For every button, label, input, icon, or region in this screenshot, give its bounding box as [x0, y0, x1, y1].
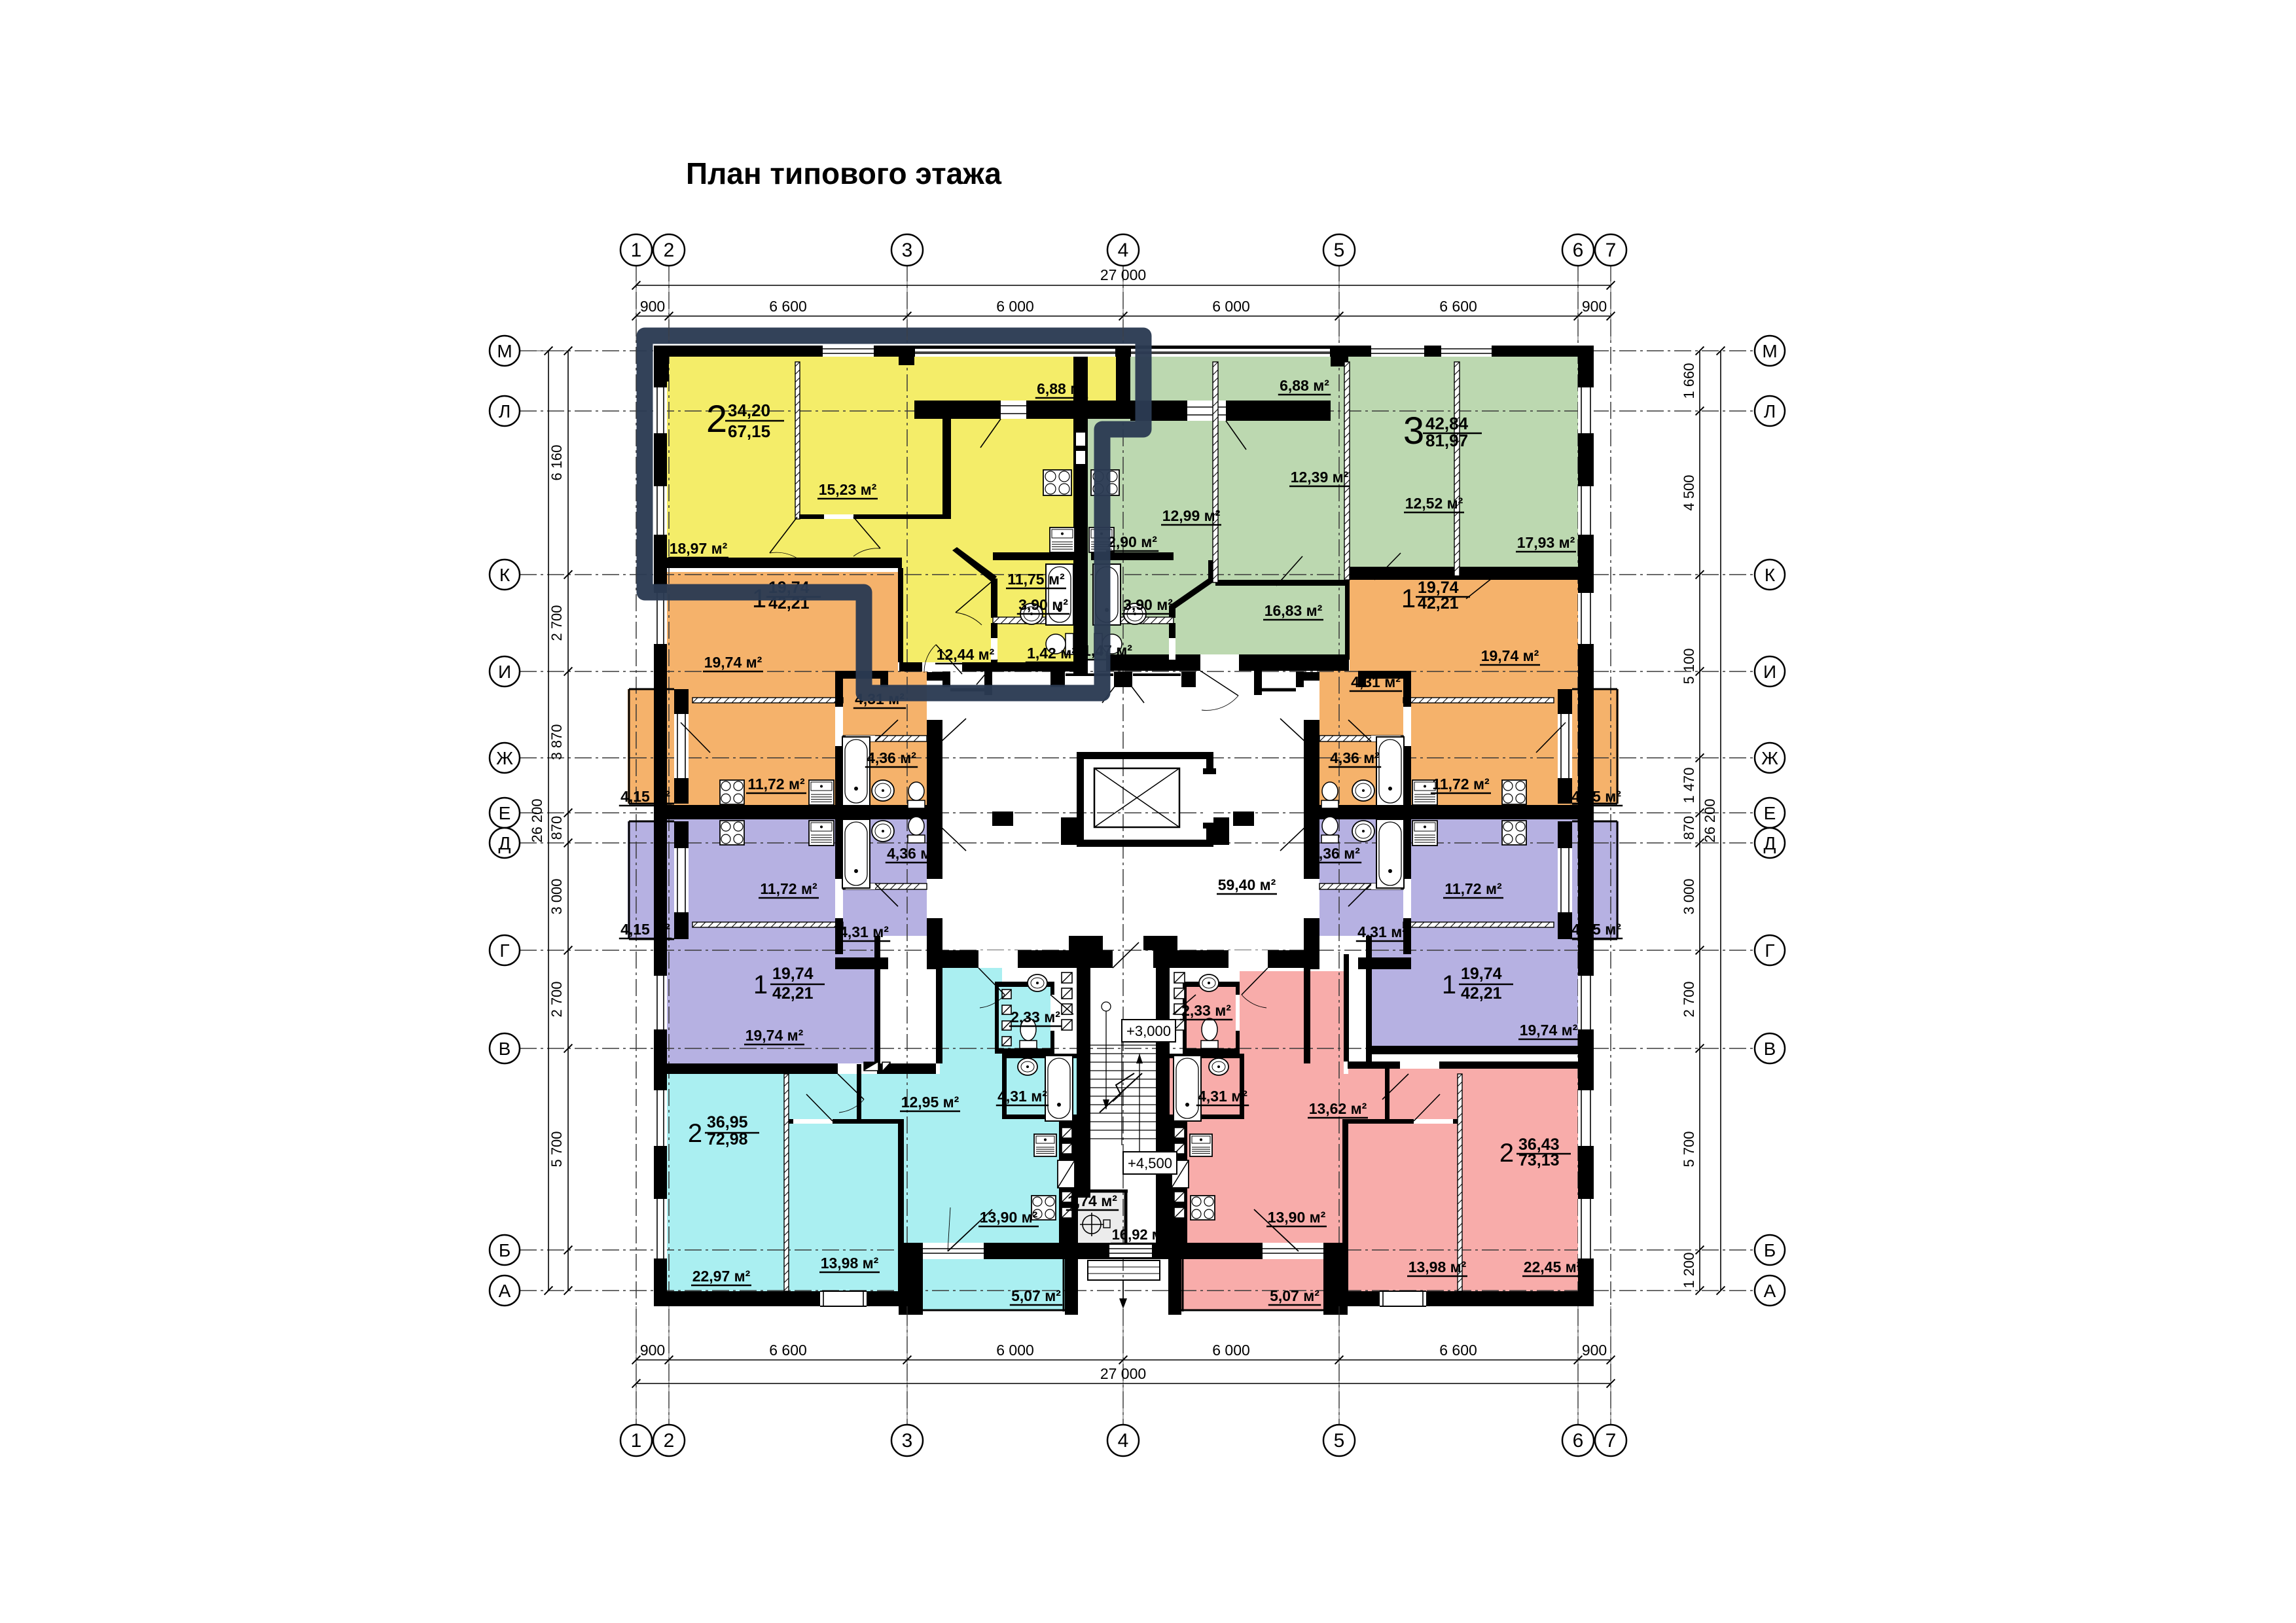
svg-text:5,07 м²: 5,07 м² — [1270, 1287, 1319, 1304]
svg-text:+3,000: +3,000 — [1126, 1023, 1171, 1039]
svg-text:Д: Д — [1764, 833, 1776, 853]
svg-text:67,15: 67,15 — [728, 421, 770, 441]
svg-text:Д: Д — [499, 833, 511, 853]
svg-text:К: К — [499, 565, 511, 585]
svg-text:900: 900 — [640, 1342, 665, 1359]
svg-text:17,93 м²: 17,93 м² — [1517, 534, 1575, 551]
svg-text:4,15 м²: 4,15 м² — [1571, 921, 1621, 938]
svg-text:27 000: 27 000 — [1100, 266, 1146, 283]
svg-text:4 500: 4 500 — [1681, 474, 1697, 510]
svg-text:4,36 м²: 4,36 м² — [887, 845, 937, 862]
svg-text:72,98: 72,98 — [707, 1130, 748, 1149]
svg-text:16,83 м²: 16,83 м² — [1265, 602, 1323, 619]
svg-text:12,95 м²: 12,95 м² — [901, 1094, 960, 1111]
svg-text:Б: Б — [499, 1240, 511, 1260]
svg-text:4,15 м²: 4,15 м² — [620, 921, 670, 938]
svg-text:13,98 м²: 13,98 м² — [1408, 1258, 1467, 1275]
svg-text:36,95: 36,95 — [707, 1113, 748, 1132]
svg-text:5 700: 5 700 — [1681, 1131, 1697, 1167]
svg-text:1: 1 — [1442, 971, 1456, 999]
svg-text:42,21: 42,21 — [1461, 984, 1502, 1003]
svg-text:19,74: 19,74 — [772, 965, 814, 983]
svg-text:1 660: 1 660 — [1681, 363, 1697, 399]
svg-text:42,21: 42,21 — [1418, 594, 1459, 613]
svg-text:К: К — [1765, 565, 1776, 585]
svg-text:19,74 м²: 19,74 м² — [1481, 647, 1539, 664]
svg-text:22,45 м²: 22,45 м² — [1524, 1258, 1582, 1275]
svg-text:870: 870 — [1681, 816, 1697, 840]
svg-text:11,72 м²: 11,72 м² — [747, 776, 805, 793]
svg-text:6,88 м²: 6,88 м² — [1037, 380, 1086, 397]
svg-text:3: 3 — [902, 1430, 913, 1452]
svg-text:4,31 м²: 4,31 м² — [1198, 1088, 1247, 1105]
svg-text:1 200: 1 200 — [1681, 1252, 1697, 1288]
svg-text:6 000: 6 000 — [1212, 1342, 1250, 1359]
svg-text:5: 5 — [1334, 240, 1345, 261]
svg-text:Л: Л — [499, 401, 511, 421]
svg-text:В: В — [499, 1039, 511, 1059]
svg-text:5 700: 5 700 — [548, 1131, 565, 1167]
svg-text:12,52 м²: 12,52 м² — [1405, 495, 1463, 512]
svg-text:3 870: 3 870 — [548, 724, 565, 760]
svg-text:3 000: 3 000 — [1681, 878, 1697, 914]
svg-text:2: 2 — [664, 240, 675, 261]
svg-text:+4,500: +4,500 — [1128, 1155, 1172, 1171]
svg-text:А: А — [499, 1281, 511, 1301]
svg-text:13,90 м²: 13,90 м² — [1268, 1209, 1326, 1226]
svg-text:3,90 м²: 3,90 м² — [1018, 596, 1068, 613]
svg-text:4: 4 — [1118, 1430, 1129, 1452]
svg-text:42,21: 42,21 — [772, 984, 814, 1003]
svg-text:3,90 м²: 3,90 м² — [1123, 596, 1173, 613]
svg-text:М: М — [1762, 341, 1777, 361]
svg-text:6 000: 6 000 — [996, 298, 1034, 315]
svg-text:1,74 м²: 1,74 м² — [1067, 1192, 1117, 1209]
svg-text:6 600: 6 600 — [1439, 1342, 1477, 1359]
svg-text:М: М — [497, 341, 512, 361]
svg-text:11,72 м²: 11,72 м² — [760, 880, 817, 897]
svg-text:1: 1 — [631, 240, 642, 261]
svg-text:Л: Л — [1764, 401, 1776, 421]
svg-text:19,74: 19,74 — [1461, 965, 1502, 983]
svg-text:Ж: Ж — [496, 748, 513, 768]
svg-text:Ж: Ж — [1761, 748, 1778, 768]
svg-text:Б: Б — [1764, 1240, 1776, 1260]
svg-text:2: 2 — [706, 398, 727, 440]
svg-text:6 600: 6 600 — [769, 298, 807, 315]
svg-text:4,15 м²: 4,15 м² — [1571, 788, 1621, 805]
svg-text:1,42 м²: 1,42 м² — [1027, 645, 1077, 662]
svg-text:6 600: 6 600 — [769, 1342, 807, 1359]
svg-text:12,99 м²: 12,99 м² — [1162, 507, 1221, 524]
svg-text:7: 7 — [1605, 240, 1617, 261]
svg-text:4,31 м²: 4,31 м² — [997, 1088, 1047, 1105]
svg-text:2: 2 — [1499, 1139, 1514, 1168]
svg-text:2 700: 2 700 — [1681, 981, 1697, 1017]
svg-text:А: А — [1764, 1281, 1776, 1301]
svg-text:26 200: 26 200 — [1702, 798, 1718, 842]
svg-text:И: И — [1763, 662, 1776, 682]
svg-text:В: В — [1764, 1039, 1776, 1059]
svg-text:6,88 м²: 6,88 м² — [1280, 377, 1329, 394]
svg-text:5: 5 — [1334, 1430, 1345, 1452]
svg-text:4,36 м²: 4,36 м² — [1330, 749, 1380, 766]
svg-text:16,92 м²: 16,92 м² — [1112, 1226, 1168, 1243]
svg-text:1: 1 — [631, 1430, 642, 1452]
svg-text:5 100: 5 100 — [1681, 648, 1697, 684]
svg-text:22,97 м²: 22,97 м² — [692, 1268, 751, 1285]
svg-text:3: 3 — [1403, 410, 1424, 452]
svg-text:И: И — [498, 662, 511, 682]
svg-text:900: 900 — [1582, 298, 1607, 315]
svg-text:870: 870 — [548, 816, 565, 840]
svg-text:19,74 м²: 19,74 м² — [745, 1027, 804, 1044]
svg-text:7: 7 — [1605, 1430, 1617, 1452]
svg-text:Е: Е — [1764, 803, 1776, 823]
svg-text:19,74 м²: 19,74 м² — [1520, 1022, 1578, 1039]
svg-text:27 000: 27 000 — [1100, 1365, 1146, 1382]
svg-text:6 000: 6 000 — [996, 1342, 1034, 1359]
svg-text:6 000: 6 000 — [1212, 298, 1250, 315]
svg-text:34,20: 34,20 — [728, 401, 770, 420]
svg-text:2: 2 — [664, 1430, 675, 1452]
svg-text:12,44 м²: 12,44 м² — [937, 646, 995, 663]
svg-text:4,31 м²: 4,31 м² — [1357, 923, 1407, 940]
svg-text:900: 900 — [1582, 1342, 1607, 1359]
svg-text:4,31 м²: 4,31 м² — [1351, 673, 1401, 690]
svg-text:13,90 м²: 13,90 м² — [980, 1209, 1038, 1226]
svg-text:11,72 м²: 11,72 м² — [1444, 880, 1502, 897]
svg-text:План типового этажа: План типового этажа — [686, 156, 1001, 190]
svg-text:2,33 м²: 2,33 м² — [1011, 1008, 1060, 1026]
svg-text:11,72 м²: 11,72 м² — [1432, 776, 1490, 793]
svg-text:2 700: 2 700 — [548, 605, 565, 641]
svg-text:5,07 м²: 5,07 м² — [1011, 1287, 1061, 1304]
svg-text:6 600: 6 600 — [1439, 298, 1477, 315]
svg-text:13,98 м²: 13,98 м² — [821, 1255, 879, 1272]
svg-text:4: 4 — [1118, 240, 1129, 261]
svg-text:Г: Г — [1765, 940, 1774, 961]
svg-text:2,33 м²: 2,33 м² — [1181, 1002, 1231, 1019]
svg-text:6 160: 6 160 — [548, 444, 565, 480]
svg-text:1: 1 — [753, 971, 768, 999]
svg-text:26 200: 26 200 — [529, 798, 545, 842]
svg-text:12,39 м²: 12,39 м² — [1291, 469, 1349, 486]
svg-text:6: 6 — [1573, 1430, 1584, 1452]
svg-text:18,97 м²: 18,97 м² — [670, 540, 728, 557]
svg-text:900: 900 — [640, 298, 665, 315]
svg-text:19,74 м²: 19,74 м² — [704, 654, 762, 671]
svg-text:11,75 м²: 11,75 м² — [1007, 571, 1065, 588]
svg-text:73,13: 73,13 — [1518, 1151, 1560, 1169]
svg-text:3 000: 3 000 — [548, 878, 565, 914]
svg-text:4,36 м²: 4,36 м² — [1310, 845, 1360, 862]
svg-text:4,36 м²: 4,36 м² — [867, 749, 916, 766]
svg-text:4,15 м²: 4,15 м² — [620, 788, 670, 805]
svg-text:2 700: 2 700 — [548, 981, 565, 1017]
svg-text:3: 3 — [902, 240, 913, 261]
svg-text:Г: Г — [499, 940, 509, 961]
svg-text:15,23 м²: 15,23 м² — [819, 481, 877, 498]
svg-text:81,97: 81,97 — [1426, 431, 1468, 450]
svg-text:1: 1 — [1401, 584, 1416, 613]
svg-text:1 470: 1 470 — [1681, 767, 1697, 803]
svg-text:2: 2 — [688, 1119, 702, 1148]
svg-text:4,31 м²: 4,31 м² — [839, 923, 889, 940]
svg-text:2,90 м²: 2,90 м² — [1107, 533, 1157, 550]
svg-text:59,40 м²: 59,40 м² — [1218, 876, 1276, 893]
svg-text:Е: Е — [499, 803, 511, 823]
svg-text:6: 6 — [1573, 240, 1584, 261]
svg-text:13,62 м²: 13,62 м² — [1309, 1100, 1367, 1117]
